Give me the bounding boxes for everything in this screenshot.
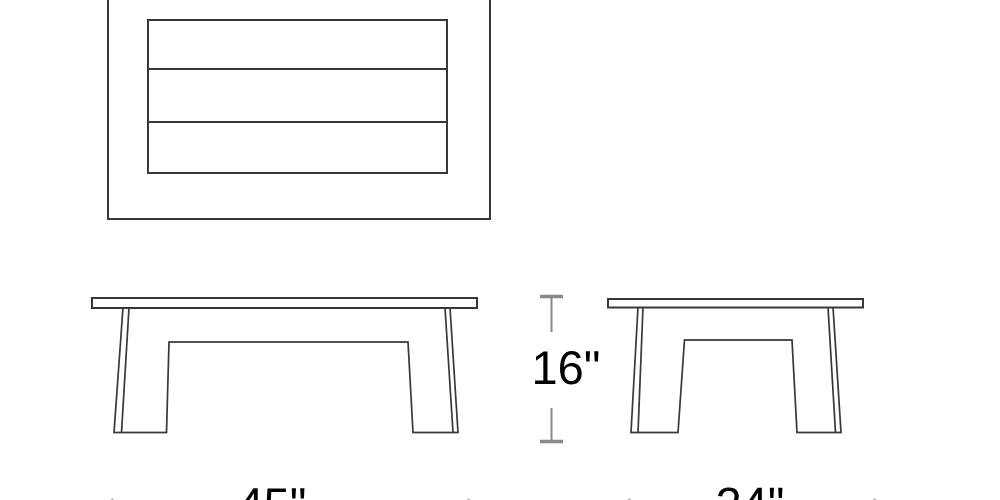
height-dimension: 16" bbox=[532, 297, 601, 442]
table-dimension-drawing: 16" 45" 24" bbox=[0, 0, 1000, 500]
height-dim-label: 16" bbox=[532, 341, 601, 394]
top-view bbox=[108, 0, 490, 219]
depth-dimension: 24" bbox=[617, 478, 887, 500]
front-view-tabletop bbox=[92, 298, 477, 308]
front-view bbox=[92, 298, 477, 433]
side-view bbox=[608, 299, 863, 433]
side-view-legs-outline bbox=[631, 307, 841, 433]
side-view-tabletop bbox=[608, 299, 863, 308]
width-dimension: 45" bbox=[100, 478, 481, 500]
width-dim-label: 45" bbox=[238, 478, 307, 500]
front-view-legs-outline bbox=[114, 308, 458, 433]
dimension-drawing-page: 16" 45" 24" bbox=[0, 0, 1000, 500]
top-view-slat-panel-outline bbox=[148, 20, 447, 173]
depth-dim-label: 24" bbox=[716, 478, 785, 500]
